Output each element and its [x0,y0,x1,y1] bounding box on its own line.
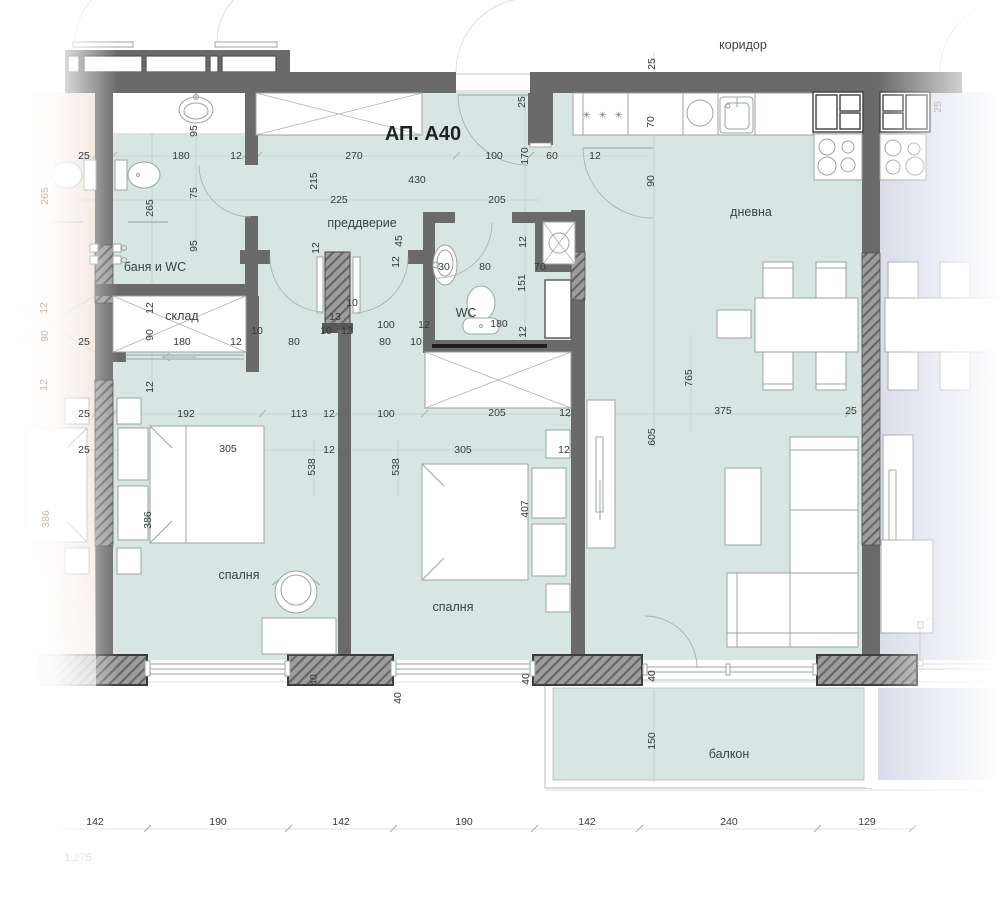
dim-label: 113 [291,408,308,420]
dim-label: 215 [308,172,320,190]
dim-label: 10 [410,336,422,348]
dim-label: 12 [230,336,242,348]
dim-label: 10 [251,325,263,337]
dim-label: 12 [38,379,50,391]
balcony-sliding-door [642,664,817,675]
dim-label: 45 [393,235,405,247]
dim-label: 12 [390,256,402,268]
dim-label: 538 [390,458,402,476]
dim-label: 12 [418,319,430,331]
dim-label: 25 [78,150,90,162]
dim-label: 40 [520,673,532,685]
dim-label: 80 [288,336,300,348]
dim-label: 12 [230,150,242,162]
dim-label: 192 [177,408,195,420]
room-label-hall: преддверие [327,216,396,230]
floorplan-page: АП. А40 коридор баня и WC склад преддвер… [0,0,1000,902]
right-fade [878,0,1000,902]
dim-label: 765 [683,369,695,387]
bed-bedroom2 [422,464,528,580]
top-wall-left [65,72,456,93]
dim-label: 25 [646,58,658,70]
dim-label: 12 [323,408,335,420]
dim-label: 151 [516,274,528,292]
floorplan-drawing: АП. А40 коридор баня и WC склад преддвер… [0,0,1000,902]
dim-label: 70 [534,261,546,273]
room-label-bedroom2: спалня [433,600,474,614]
coffee-table [725,468,761,545]
dim-label: 12 [589,150,601,162]
dim-label: 30 [438,261,450,273]
nightstand [117,548,141,574]
dim-label: 180 [490,318,508,330]
dim-label: 407 [519,500,531,518]
dining-table [755,298,858,352]
dim-label: 25 [78,408,90,420]
dim-label: 180 [173,336,191,348]
dim-label: 12 [517,236,529,248]
dim-label: 12 [559,407,571,419]
dim-label: 70 [645,116,657,128]
dim-label: 10 [320,325,332,337]
scale-note: 1.275 [64,852,92,864]
dim-label: 90 [39,330,51,342]
dim-label: 605 [646,428,658,446]
room-label-storage: склад [165,309,199,323]
plan-title: АП. А40 [385,123,461,145]
dim-label: 12 [144,381,156,393]
dim-label: 190 [209,816,227,828]
balcony-floor [553,688,864,780]
dim-label: 25 [78,444,90,456]
nightstand [546,584,570,612]
room-label-living: дневна [730,205,772,219]
dim-label: 180 [172,150,190,162]
dim-label: 265 [144,199,156,217]
dim-label: 265 [39,187,51,205]
dim-label: 25 [932,101,944,113]
dim-label: 100 [377,319,395,331]
dim-label: 150 [646,732,658,750]
dim-label: 205 [488,194,506,206]
dim-label: 205 [488,407,506,419]
dim-label: 538 [306,458,318,476]
dim-label: 13 [329,311,341,323]
dim-label: 75 [188,187,200,199]
dim-label: 129 [858,816,876,828]
dim-label: 170 [519,147,531,165]
dim-label: 25 [845,405,857,417]
dim-label: 142 [578,816,596,828]
dim-label: 430 [408,174,426,186]
dim-label: 90 [144,329,156,341]
dim-label: 190 [455,816,473,828]
dim-label: 225 [330,194,348,206]
dim-label: 240 [720,816,738,828]
dim-label: 12 [38,302,50,314]
dim-label: 142 [86,816,104,828]
dim-label: 386 [40,510,52,528]
dim-label: 95 [188,125,200,137]
dim-label: 25 [78,336,90,348]
dim-label: 10 [346,297,358,309]
dim-label: 12 [310,242,322,254]
dim-label: 12 [144,302,156,314]
dim-label: 60 [546,150,558,162]
window-bedroom2 [391,661,535,676]
dim-label: 80 [479,261,491,273]
bath-south-wall [95,284,258,296]
dim-label: 40 [646,670,658,682]
dim-label: 100 [377,408,395,420]
dim-label: 305 [454,444,472,456]
room-label-bath: баня и WC [124,260,186,274]
dim-label: 375 [714,405,732,417]
room-label-wc: WC [456,306,477,320]
dim-label: 270 [345,150,363,162]
dim-label: 80 [379,336,391,348]
room-label-bedroom1: спалня [219,568,260,582]
dim-label: 12 [323,444,335,456]
dim-label: 386 [142,511,154,529]
dim-label: 90 [645,175,657,187]
dim-label: 40 [308,674,320,686]
dim-label: 40 [392,692,404,704]
dim-label: 95 [188,240,200,252]
utility-shaft [545,280,571,338]
nightstand [117,398,141,424]
tv-cabinet [587,400,615,548]
dim-label: 142 [332,816,350,828]
bedroom-divider-wall [338,330,351,655]
dim-label: 100 [485,150,503,162]
dim-label: 305 [219,443,237,455]
bath-toilet [128,162,160,188]
dim-label: 12 [341,325,353,337]
desk-bedroom1 [262,618,336,654]
dim-label: 25 [516,96,528,108]
room-label-balcony: балкон [709,747,750,761]
dim-label: 12 [517,326,529,338]
window-bedroom1 [145,661,290,676]
dim-label: 12 [558,444,570,456]
burner-symbols: ✳ ✳ ✳ [583,110,626,120]
room-label-corridor: коридор [719,38,767,52]
